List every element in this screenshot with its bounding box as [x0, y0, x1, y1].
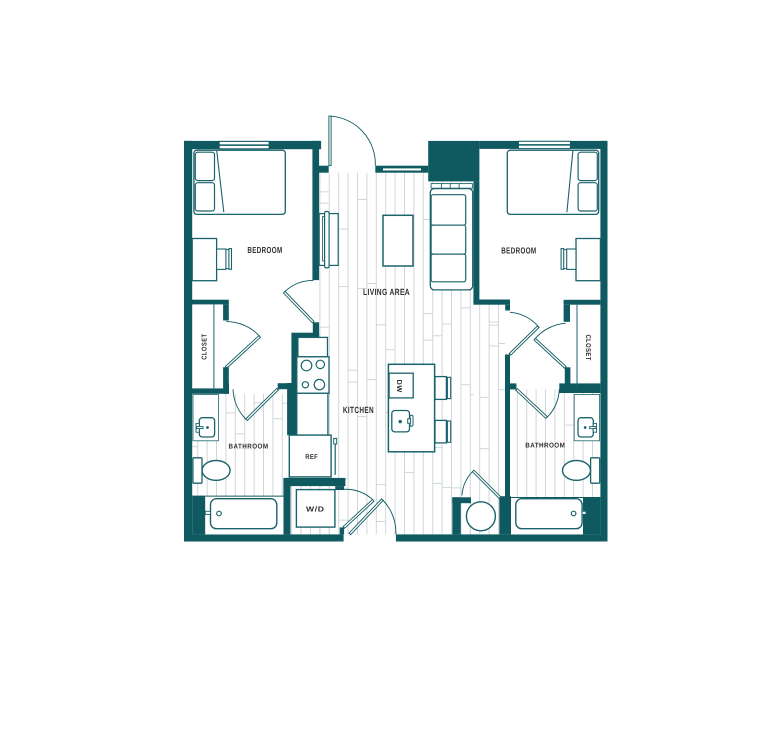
- svg-text:W/D: W/D: [306, 504, 325, 513]
- svg-text:CLOSET: CLOSET: [202, 333, 209, 359]
- svg-text:BEDROOM: BEDROOM: [247, 245, 282, 255]
- svg-text:BATHROOM: BATHROOM: [229, 444, 269, 451]
- svg-text:BATHROOM: BATHROOM: [525, 442, 565, 449]
- svg-text:REF: REF: [305, 454, 318, 461]
- svg-text:LIVING AREA: LIVING AREA: [363, 287, 410, 297]
- svg-text:BEDROOM: BEDROOM: [501, 246, 536, 256]
- svg-text:KITCHEN: KITCHEN: [343, 405, 374, 415]
- svg-text:DW: DW: [395, 380, 402, 393]
- svg-text:CLOSET: CLOSET: [584, 335, 591, 361]
